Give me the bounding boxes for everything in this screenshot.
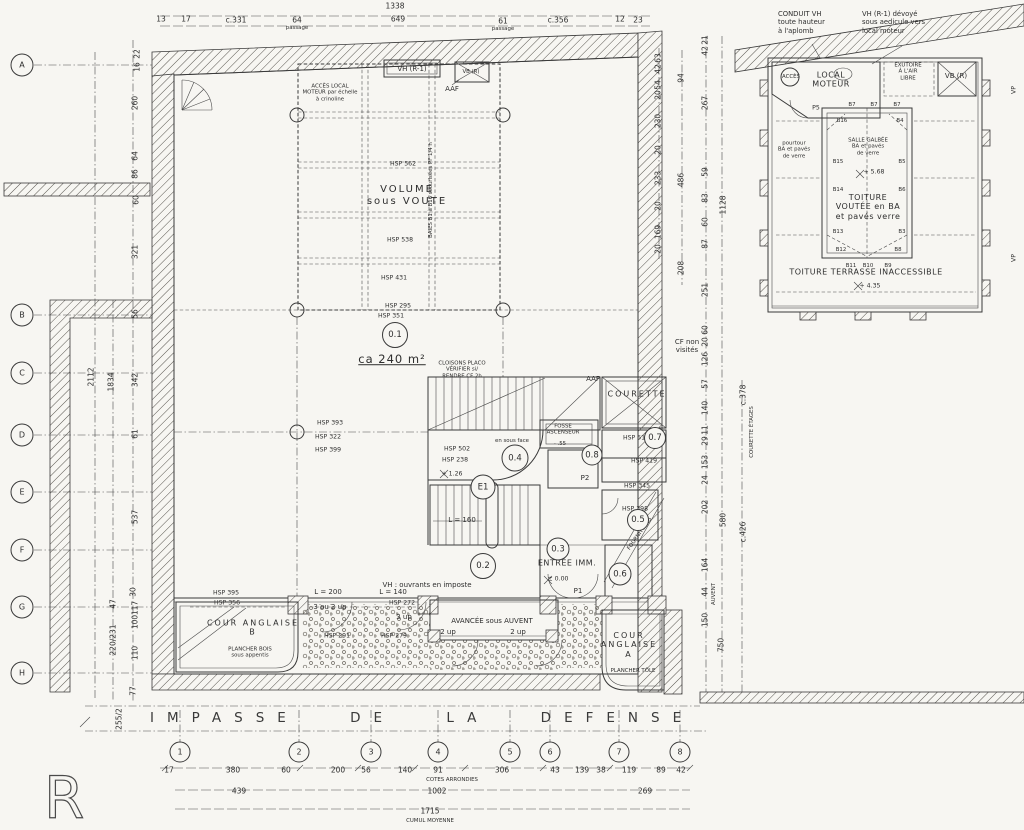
plan-annotation: 42 <box>676 767 686 776</box>
plan-annotation: 20 <box>655 90 664 100</box>
plan-annotation: 77 <box>130 686 139 696</box>
plan-annotation: 91 <box>433 767 443 776</box>
plan-annotation: HSP 322 <box>315 433 341 440</box>
room-number-bubble: 0.8 <box>582 445 603 466</box>
plan-annotation: + 1.26 <box>442 470 463 477</box>
plan-annotation: en sous face <box>495 438 529 444</box>
grid-row-bubble-D: D <box>11 424 34 447</box>
plan-annotation: 649 <box>391 16 405 25</box>
plan-annotation: HSP 345 <box>624 482 650 489</box>
plan-annotation: 60 <box>281 767 291 776</box>
plan-annotation: COUR ANGLAISE A <box>601 631 657 659</box>
grid-row-bubble-B: B <box>11 304 34 327</box>
plan-annotation: B7 <box>848 102 855 108</box>
grid-col-bubble-1: 1 <box>170 742 191 763</box>
note-vh-devoye: VH (R-1) dévoyé sous aedicule vers local… <box>862 10 925 35</box>
plan-annotation: 20 <box>655 244 664 254</box>
plan-annotation: 1128 <box>720 195 729 214</box>
plan-annotation: 56 <box>361 767 371 776</box>
plan-annotation: 267 <box>702 96 711 110</box>
note-conduit-vh: CONDUIT VH toute hauteur à l'aplomb <box>778 10 825 35</box>
plan-annotation: B7 <box>893 102 900 108</box>
grid-row-bubble-H: H <box>11 662 34 685</box>
plan-annotation: B5 <box>898 159 905 165</box>
plan-annotation: EXUTOIRE À L'AIR LIBRE <box>894 62 921 81</box>
plan-annotation: BAIES B1 à B16 sécurisées PF 1/4 h <box>428 142 434 238</box>
plan-annotation: 60 <box>702 325 711 335</box>
plan-annotation: LOCAL MOTEUR <box>812 71 850 90</box>
plan-annotation: 17 <box>164 767 174 776</box>
plan-annotation: 1715 <box>420 808 439 817</box>
plan-annotation: 11 <box>702 425 711 435</box>
plan-annotation: HSP 279 <box>381 632 407 639</box>
grid-col-bubble-7: 7 <box>609 742 630 763</box>
grid-col-bubble-4: 4 <box>428 742 449 763</box>
plan-annotation: HSP 291 <box>324 632 350 639</box>
plan-annotation: 164 <box>702 558 711 572</box>
plan-annotation: HSP 393 <box>317 419 343 426</box>
plan-annotation: 1338 <box>385 3 404 12</box>
plan-annotation: TOITURE TERRASSE INACCESSIBLE <box>789 267 942 276</box>
plan-annotation: VP <box>1010 86 1017 94</box>
plan-annotation: 83 <box>702 193 711 203</box>
plan-annotation: 380 <box>226 767 240 776</box>
plan-annotation: 16 <box>134 62 143 72</box>
plan-annotation: 486 <box>678 173 687 187</box>
plan-annotation: 153 <box>702 455 711 469</box>
plan-annotation: 43 <box>550 767 560 776</box>
plan-annotation: 200 <box>331 767 345 776</box>
plan-annotation: HSP 399 <box>315 446 341 453</box>
plan-annotation: 20 <box>702 337 711 347</box>
room-number-bubble: 0.1 <box>382 322 408 348</box>
plan-annotation: PLANCHER TÔLE <box>611 668 656 674</box>
grid-row-bubble-F: F <box>11 539 34 562</box>
grid-col-bubble-8: 8 <box>670 742 691 763</box>
grid-row-bubble-A: A <box>11 54 34 77</box>
plan-annotation: 22 <box>134 49 143 59</box>
room-number-bubble: 0.6 <box>609 563 632 586</box>
plan-annotation: - .55 <box>554 441 566 447</box>
plan-annotation: 17 <box>181 16 191 25</box>
plan-annotation: c.356 <box>548 17 569 26</box>
plan-annotation: L = 200 <box>314 588 342 596</box>
plan-annotation: 110 <box>132 646 141 660</box>
room-number-bubble: 0.3 <box>547 538 570 561</box>
plan-annotation: L = 140 <box>379 588 407 596</box>
plan-annotation: CLOISONS PLACO VÉRIFIER si/ RENDRE CF 2h <box>438 360 485 379</box>
room-number-bubble: E1 <box>471 475 496 500</box>
room-number-bubble: 0.4 <box>502 445 529 472</box>
plan-annotation: 21 <box>702 35 711 45</box>
grid-row-bubble-E: E <box>11 481 34 504</box>
plan-annotation: 29 <box>702 436 711 446</box>
plan-annotation: B8 <box>894 247 901 253</box>
plan-annotation: B15 <box>833 159 844 165</box>
plan-annotation: 306 <box>495 767 509 776</box>
plan-annotation: VP <box>1010 254 1017 262</box>
plan-annotation: 100 <box>132 615 141 629</box>
grid-col-bubble-2: 2 <box>289 742 310 763</box>
plan-annotation: AUVENT <box>711 583 717 605</box>
plan-annotation: pourtour BA et pavés de verre <box>778 140 810 159</box>
plan-annotation: 86 <box>132 169 141 179</box>
plan-annotation: 94 <box>678 73 687 83</box>
plan-annotation: HSP 502 <box>444 445 470 452</box>
room-number-bubble: 0.5 <box>627 509 649 531</box>
room-number-bubble: 0.7 <box>644 427 666 449</box>
plan-annotation: P2 <box>581 474 590 482</box>
plan-annotation: c.426 <box>740 522 749 543</box>
plan-annotation: HSP 538 <box>387 236 413 243</box>
plan-annotation: B13 <box>833 229 844 235</box>
plan-annotation: 61 <box>132 429 141 439</box>
plan-annotation: AAF <box>445 85 459 93</box>
plan-annotation: 202 <box>702 500 711 514</box>
plan-annotation: HSP 238 <box>442 456 468 463</box>
plan-annotation: 139 <box>575 767 589 776</box>
plan-annotation: 42 <box>655 64 664 74</box>
plan-annotation: 60 <box>702 217 711 227</box>
plan-annotation: P5 <box>812 104 820 111</box>
plan-annotation: VB (R) <box>945 72 967 80</box>
plan-annotation: 30 <box>130 587 139 597</box>
plan-annotation: 439 <box>232 788 246 797</box>
plan-annotation: 119 <box>622 767 636 776</box>
area-label: ca 240 m² <box>358 353 425 367</box>
plan-annotation: 20 <box>655 145 664 155</box>
plan-annotation: 169 <box>655 225 664 239</box>
plan-annotation: 57 <box>702 379 711 389</box>
plan-annotation: 23 <box>633 17 643 26</box>
plan-annotation: 2112 <box>88 367 97 386</box>
plan-annotation: ACCÈS LOCAL MOTEUR par échelle à crinoli… <box>303 83 358 102</box>
plan-annotation: 54 <box>655 80 664 90</box>
plan-annotation: 87 <box>702 239 711 249</box>
plan-annotation: 537 <box>132 510 141 524</box>
plan-annotation: 126 <box>702 352 711 366</box>
plan-annotation: 63 <box>655 53 664 63</box>
room-number-bubble: 0.2 <box>470 553 496 579</box>
grid-col-bubble-3: 3 <box>361 742 382 763</box>
plan-annotation: 342 <box>132 373 141 387</box>
plan-annotation: FOSSE ASCENSEUR <box>547 424 580 437</box>
grid-col-bubble-5: 5 <box>500 742 521 763</box>
plan-annotation: passage <box>286 25 308 31</box>
plan-annotation: 150 <box>702 613 711 627</box>
plan-annotation: 230 <box>655 114 664 128</box>
plan-annotation: 59 <box>702 167 711 177</box>
plan-annotation: ENTRÉE IMM. <box>538 558 596 567</box>
plan-annotation: 140 <box>398 767 412 776</box>
plan-annotation: HSP 562 <box>390 160 416 167</box>
plan-annotation: COURETTE <box>607 389 666 398</box>
plan-annotation: 269 <box>638 788 652 797</box>
plan-annotation: AAF <box>586 375 600 383</box>
plan-annotation: 2 up <box>440 628 456 636</box>
plan-annotation: c.378 <box>740 385 749 406</box>
plan-annotation: 255/2 <box>116 708 125 730</box>
plan-annotation: VOLUME sous VOUTE <box>367 184 447 208</box>
plan-annotation: L = 160 <box>448 516 476 524</box>
plan-annotation: 60 <box>133 195 142 205</box>
plan-annotation: + 5.68 <box>864 168 885 175</box>
plan-annotation: VB (R) <box>462 69 479 75</box>
plan-annotation: 2 up <box>510 628 526 636</box>
plan-annotation: AVANCÉE sous AUVENT <box>451 617 533 625</box>
plan-annotation: 13 <box>156 16 166 25</box>
grid-row-bubble-G: G <box>11 596 34 619</box>
plan-annotation: 1002 <box>427 788 446 797</box>
plan-annotation: HSP 272 <box>389 599 415 606</box>
plan-annotation: 38 <box>596 767 606 776</box>
plan-annotation: 1834 <box>108 372 117 391</box>
plan-annotation: CF non visités <box>675 338 699 355</box>
plan-annotation: B4 <box>896 118 903 124</box>
plan-annotation: B3 <box>898 229 905 235</box>
plan-annotation: 3 up <box>396 613 412 621</box>
plan-annotation: 42 <box>702 46 711 56</box>
plan-annotation: 64 <box>132 151 141 161</box>
plan-annotation: B12 <box>836 247 847 253</box>
plan-annotation: 20 <box>655 201 664 211</box>
plan-annotation: HSP 295 <box>385 302 411 309</box>
annotation-layer: CONDUIT VH toute hauteur à l'aplombVH (R… <box>0 0 1024 830</box>
floor-plan-sheet: R CONDUIT VH toute hauteur à l'aplombVH … <box>0 0 1024 830</box>
plan-annotation: COTES ARRONDIES <box>426 777 478 783</box>
plan-annotation: 89 <box>656 767 666 776</box>
plan-annotation: B7 <box>870 102 877 108</box>
plan-annotation: 47 <box>110 599 119 609</box>
plan-annotation: 580 <box>720 513 729 527</box>
plan-annotation: 140 <box>702 401 711 415</box>
plan-annotation: 233 <box>655 171 664 185</box>
plan-annotation: 251 <box>702 283 711 297</box>
plan-annotation: 220/231 <box>110 624 119 655</box>
plan-annotation: HSP 356 <box>214 599 240 606</box>
plan-annotation: passage <box>492 26 514 32</box>
plan-annotation: HSP 351 <box>378 312 404 319</box>
grid-col-bubble-6: 6 <box>540 742 561 763</box>
plan-annotation: HSP 431 <box>381 274 407 281</box>
plan-annotation: P1 <box>574 587 583 595</box>
plan-annotation: TOITURE VOUTÉE en BA et pavés verre <box>836 193 901 221</box>
plan-annotation: HSP 419 <box>631 457 657 464</box>
plan-annotation: ± 0.00 <box>548 575 569 582</box>
plan-annotation: COUR ANGLAISE B <box>207 619 299 638</box>
plan-annotation: 12 <box>615 16 625 25</box>
plan-annotation: B16 <box>837 118 848 124</box>
street-name: IMPASSE DE LA DEFENSE <box>150 710 694 726</box>
plan-annotation: ACCÈS <box>782 74 800 80</box>
plan-annotation: VH (R-1) <box>397 65 426 73</box>
plan-annotation: 260 <box>132 96 141 110</box>
grid-row-bubble-C: C <box>11 362 34 385</box>
plan-annotation: 750 <box>718 638 727 652</box>
plan-annotation: CUMUL MOYENNE <box>406 818 454 824</box>
plan-annotation: 117 <box>132 601 141 615</box>
plan-annotation: 3 ou 2 up <box>313 603 346 611</box>
plan-annotation: COURETTE ÉTAGES <box>749 406 755 458</box>
plan-annotation: 321 <box>132 245 141 259</box>
plan-annotation: 208 <box>678 261 687 275</box>
plan-annotation: 24 <box>702 475 711 485</box>
plan-annotation: PLANCHER BOIS sous appentis <box>228 647 272 660</box>
plan-annotation: c.331 <box>226 17 247 26</box>
plan-annotation: HSP 395 <box>213 589 239 596</box>
plan-annotation: SALLE GALBÉE BA et pavés de verre <box>848 137 888 156</box>
plan-annotation: 56 <box>132 309 141 319</box>
plan-annotation: 44 <box>702 587 711 597</box>
plan-annotation: + 4.35 <box>860 282 881 289</box>
